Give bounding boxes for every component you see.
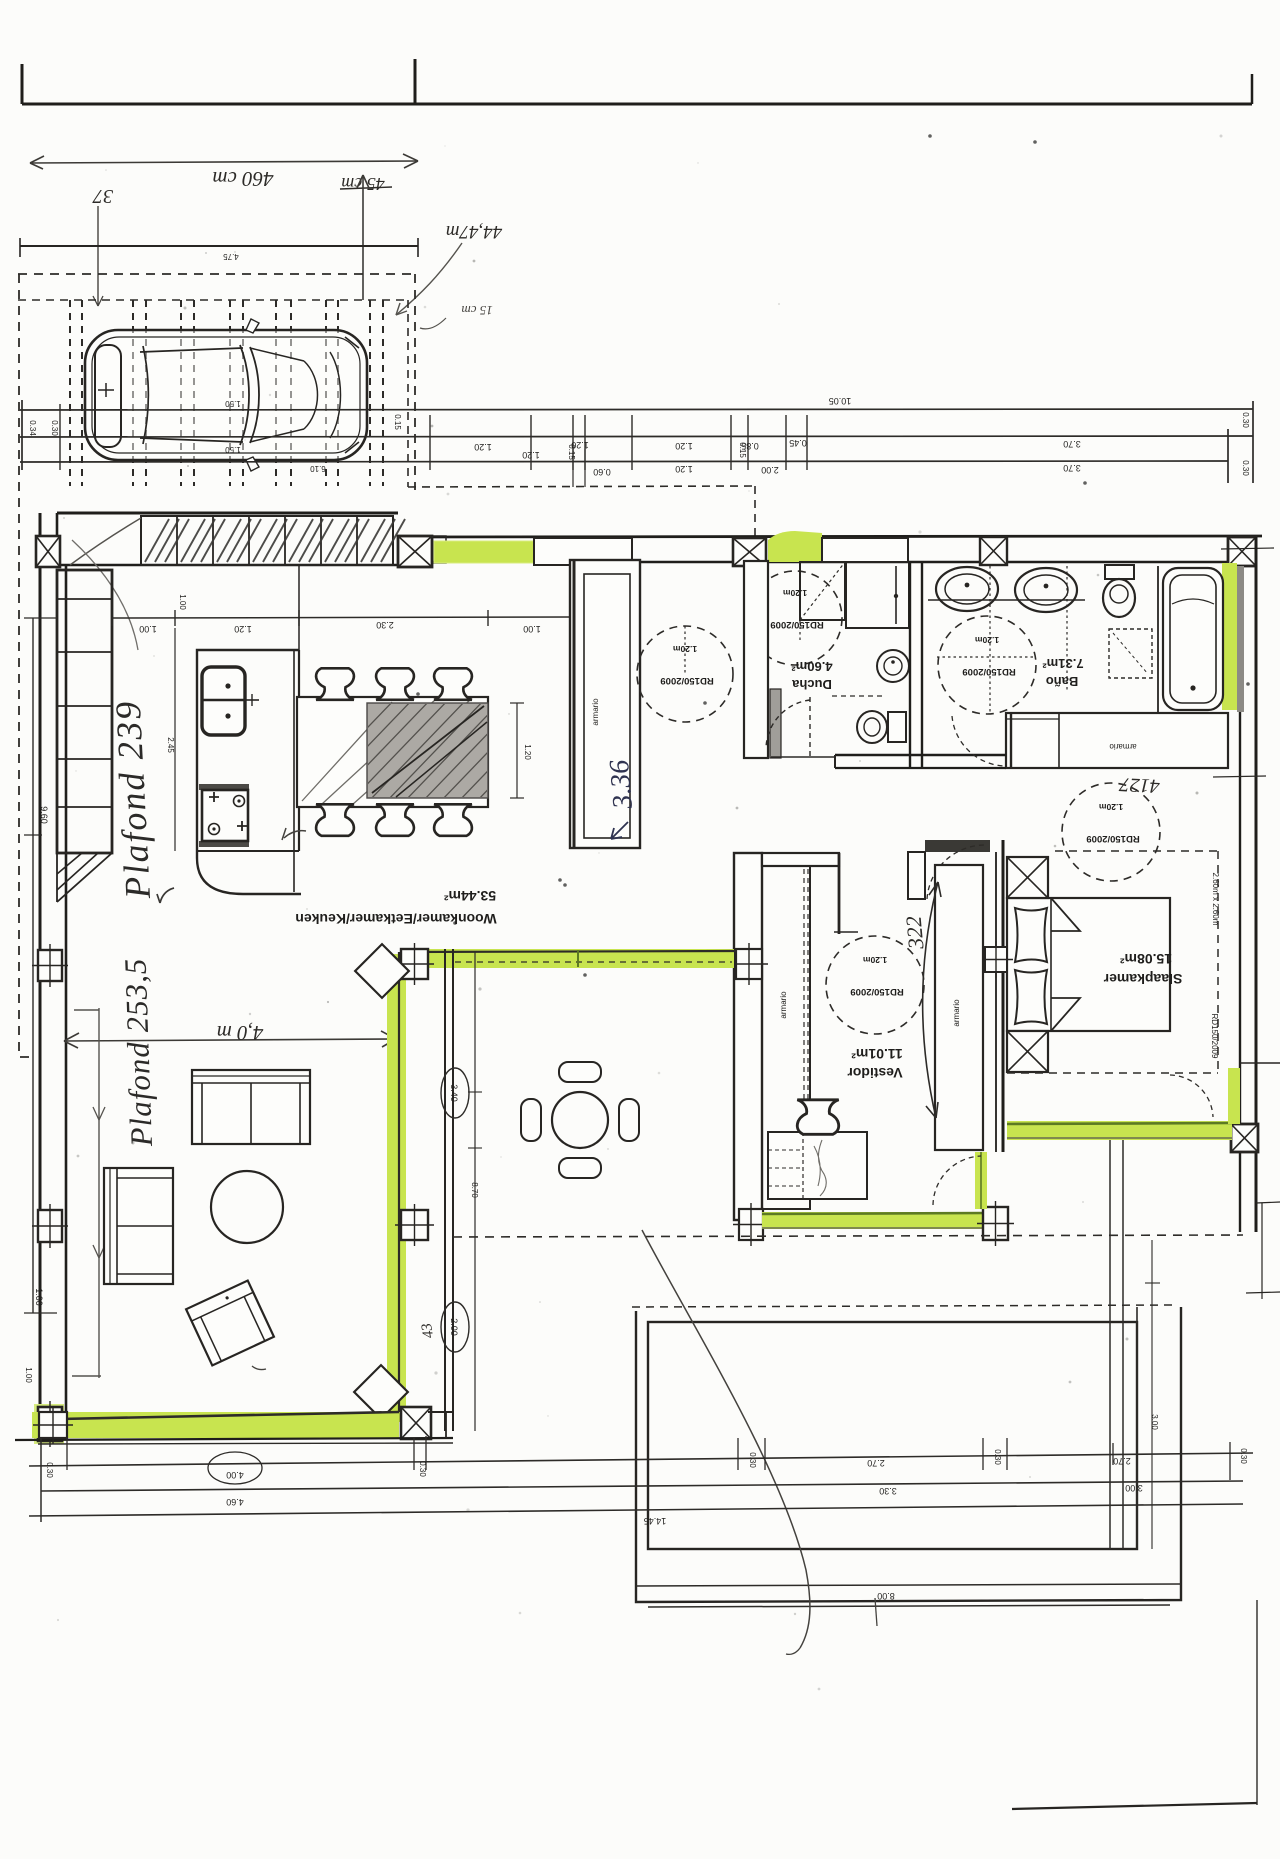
- svg-text:armario: armario: [1109, 742, 1137, 751]
- svg-text:Slaapkamer: Slaapkamer: [1103, 971, 1182, 987]
- svg-text:0.30: 0.30: [993, 1449, 1002, 1465]
- svg-text:armario: armario: [591, 698, 600, 726]
- svg-text:6.10: 6.10: [310, 464, 326, 473]
- svg-text:1.50: 1.50: [225, 399, 241, 408]
- svg-text:3.00: 3.00: [1150, 1414, 1159, 1430]
- svg-text:4.75: 4.75: [223, 252, 239, 261]
- svg-text:RD150/2009: RD150/2009: [1210, 1014, 1219, 1059]
- svg-text:322: 322: [901, 915, 929, 951]
- svg-text:1.20: 1.20: [234, 624, 252, 634]
- svg-text:1.20: 1.20: [675, 441, 693, 451]
- svg-text:3.30: 3.30: [879, 1486, 897, 1496]
- svg-text:15 cm: 15 cm: [461, 303, 492, 318]
- svg-text:1.50: 1.50: [225, 445, 241, 454]
- svg-text:0.30: 0.30: [1239, 1448, 1248, 1464]
- svg-text:0.15: 0.15: [738, 442, 747, 458]
- svg-text:1.20m: 1.20m: [975, 635, 1000, 645]
- svg-text:3.40: 3.40: [449, 1084, 459, 1102]
- svg-text:RD150/2009: RD150/2009: [660, 675, 713, 686]
- svg-text:Baño: Baño: [1046, 674, 1079, 689]
- svg-text:0.30: 0.30: [418, 1461, 427, 1477]
- svg-text:RD150/2009: RD150/2009: [1086, 833, 1139, 844]
- svg-text:1.00: 1.00: [178, 594, 187, 610]
- svg-text:RD150/2009: RD150/2009: [962, 666, 1015, 677]
- svg-text:0.60: 0.60: [593, 467, 611, 477]
- svg-text:0.30: 0.30: [45, 1462, 54, 1478]
- svg-text:460 cm: 460 cm: [212, 167, 273, 191]
- svg-text:4.00: 4.00: [226, 1470, 244, 1480]
- svg-text:4.60m²: 4.60m²: [791, 659, 833, 674]
- svg-text:1.00: 1.00: [24, 1367, 33, 1383]
- svg-text:2.00: 2.00: [449, 1318, 459, 1336]
- svg-text:3.70: 3.70: [1063, 439, 1081, 449]
- svg-text:4127: 4127: [1118, 773, 1160, 797]
- svg-text:3.36: 3.36: [604, 759, 639, 812]
- svg-text:0.15: 0.15: [567, 444, 576, 460]
- svg-text:8.00: 8.00: [877, 1591, 895, 1601]
- svg-text:Plafond 253,5: Plafond 253,5: [117, 957, 159, 1148]
- svg-text:3.70: 3.70: [1063, 463, 1081, 473]
- svg-text:1.20: 1.20: [675, 464, 693, 474]
- svg-text:0.30: 0.30: [1241, 412, 1250, 428]
- svg-text:44,47m: 44,47m: [446, 221, 502, 242]
- svg-text:2.60m x 2.60m: 2.60m x 2.60m: [1211, 873, 1220, 926]
- svg-text:11.01m²: 11.01m²: [851, 1046, 903, 1062]
- svg-text:2.00: 2.00: [761, 465, 779, 475]
- svg-text:1.20m: 1.20m: [863, 955, 888, 965]
- svg-text:armario: armario: [952, 999, 961, 1027]
- svg-text:0.30: 0.30: [1241, 460, 1250, 476]
- svg-text:9.60: 9.60: [39, 806, 49, 824]
- svg-text:1.20: 1.20: [474, 442, 492, 452]
- svg-text:armario: armario: [779, 991, 788, 1019]
- svg-text:Ducha: Ducha: [791, 677, 832, 692]
- svg-text:2.70: 2.70: [867, 1458, 885, 1468]
- svg-text:7.31m²: 7.31m²: [1042, 656, 1084, 671]
- svg-text:1.20: 1.20: [522, 450, 540, 460]
- svg-text:4,0 m: 4,0 m: [217, 1021, 264, 1045]
- svg-text:43: 43: [419, 1322, 437, 1340]
- svg-text:1.20m: 1.20m: [783, 588, 808, 598]
- svg-text:10.05: 10.05: [829, 396, 852, 406]
- svg-text:2.30: 2.30: [376, 620, 394, 630]
- svg-text:14.45: 14.45: [644, 1516, 667, 1526]
- svg-text:37: 37: [92, 185, 114, 207]
- svg-text:4.60: 4.60: [226, 1497, 244, 1507]
- svg-text:RD150/2009: RD150/2009: [850, 986, 903, 997]
- svg-text:Vestidor: Vestidor: [847, 1065, 903, 1081]
- svg-text:0.30: 0.30: [50, 420, 59, 436]
- svg-text:0.15: 0.15: [393, 414, 402, 430]
- svg-text:1.20: 1.20: [523, 744, 532, 760]
- svg-text:0.34: 0.34: [28, 420, 37, 436]
- svg-text:0.45: 0.45: [789, 438, 807, 448]
- svg-text:2.70: 2.70: [1113, 1456, 1131, 1466]
- svg-text:3.00: 3.00: [1125, 1483, 1143, 1493]
- svg-text:0.30: 0.30: [748, 1452, 757, 1468]
- svg-text:1.00: 1.00: [34, 1288, 44, 1306]
- svg-text:15.08m²: 15.08m²: [1120, 951, 1172, 967]
- svg-text:Woonkamer/Eetkamer/Keuken: Woonkamer/Eetkamer/Keuken: [295, 911, 496, 927]
- svg-text:1.20m: 1.20m: [1099, 802, 1124, 812]
- svg-text:1.00: 1.00: [523, 624, 541, 634]
- svg-text:1.00: 1.00: [139, 624, 157, 634]
- svg-text:53.44m²: 53.44m²: [444, 888, 496, 904]
- svg-text:2.45: 2.45: [166, 737, 175, 753]
